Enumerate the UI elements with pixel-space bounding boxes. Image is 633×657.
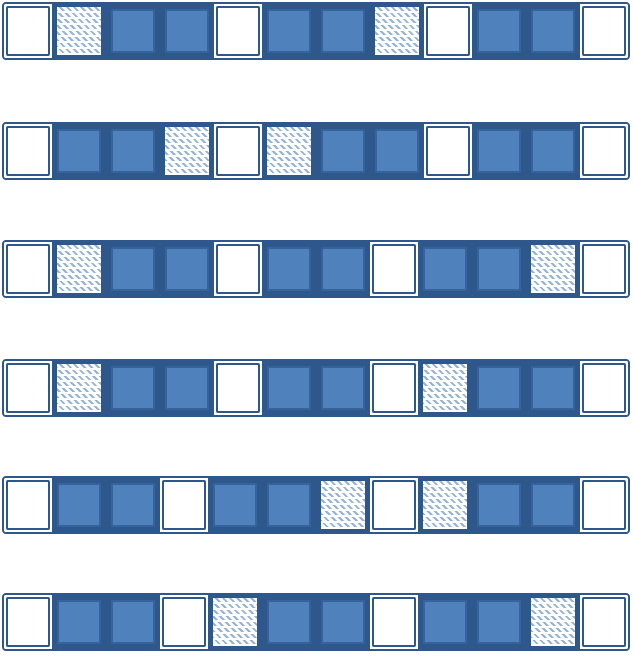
block-filled	[370, 124, 424, 178]
filled-block-face	[321, 129, 365, 173]
block-hatched	[262, 124, 316, 178]
hatched-block-face	[57, 364, 101, 412]
block-filled	[160, 242, 214, 296]
block-empty	[424, 124, 472, 178]
empty-block-face	[216, 126, 260, 176]
block-empty	[370, 478, 418, 532]
filled-block-face	[321, 9, 365, 53]
hatched-block-face	[57, 245, 101, 293]
block-empty	[580, 361, 628, 415]
filled-block-face	[321, 247, 365, 291]
block-filled	[472, 361, 526, 415]
filled-block-face	[165, 247, 209, 291]
empty-block-face	[6, 244, 50, 294]
block-filled	[316, 361, 370, 415]
filled-block-face	[165, 366, 209, 410]
block-empty	[214, 361, 262, 415]
filled-block-face	[531, 129, 575, 173]
hatched-block-face	[375, 7, 419, 55]
hatched-block-face	[423, 364, 467, 412]
filled-block-face	[477, 600, 521, 644]
block-filled	[316, 124, 370, 178]
block-hatched	[418, 478, 472, 532]
block-hatched	[418, 361, 472, 415]
block-filled	[316, 595, 370, 649]
empty-block-face	[216, 6, 260, 56]
block-empty	[370, 595, 418, 649]
filled-block-face	[477, 483, 521, 527]
empty-block-face	[6, 597, 50, 647]
block-empty	[214, 124, 262, 178]
block-hatched	[526, 242, 580, 296]
strip-row-3	[2, 240, 630, 298]
filled-block-face	[531, 483, 575, 527]
filled-block-face	[165, 9, 209, 53]
filled-block-face	[477, 129, 521, 173]
filled-block-face	[477, 247, 521, 291]
filled-block-face	[531, 9, 575, 53]
block-filled	[106, 124, 160, 178]
hatched-block-face	[267, 127, 311, 175]
block-empty	[4, 242, 52, 296]
strip-row-6	[2, 593, 630, 651]
filled-block-face	[423, 600, 467, 644]
hatched-block-face	[531, 245, 575, 293]
filled-block-face	[375, 129, 419, 173]
hatched-block-face	[321, 481, 365, 529]
block-filled	[472, 595, 526, 649]
block-hatched	[370, 4, 424, 58]
block-filled	[526, 4, 580, 58]
block-filled	[262, 242, 316, 296]
block-filled	[418, 595, 472, 649]
block-empty	[370, 242, 418, 296]
empty-block-face	[372, 363, 416, 413]
empty-block-face	[426, 6, 470, 56]
block-hatched	[160, 124, 214, 178]
empty-block-face	[216, 244, 260, 294]
block-filled	[262, 595, 316, 649]
filled-block-face	[321, 600, 365, 644]
empty-block-face	[582, 126, 626, 176]
block-filled	[316, 242, 370, 296]
block-strip-diagram	[0, 0, 633, 657]
filled-block-face	[111, 129, 155, 173]
block-hatched	[52, 242, 106, 296]
hatched-block-face	[165, 127, 209, 175]
block-filled	[472, 124, 526, 178]
hatched-block-face	[531, 598, 575, 646]
block-filled	[418, 242, 472, 296]
empty-block-face	[582, 244, 626, 294]
block-filled	[526, 124, 580, 178]
filled-block-face	[321, 366, 365, 410]
filled-block-face	[57, 129, 101, 173]
block-empty	[4, 595, 52, 649]
block-filled	[52, 595, 106, 649]
block-filled	[160, 4, 214, 58]
block-empty	[424, 4, 472, 58]
block-filled	[316, 4, 370, 58]
filled-block-face	[267, 483, 311, 527]
filled-block-face	[267, 9, 311, 53]
filled-block-face	[111, 600, 155, 644]
filled-block-face	[111, 366, 155, 410]
empty-block-face	[6, 363, 50, 413]
filled-block-face	[477, 9, 521, 53]
empty-block-face	[6, 480, 50, 530]
hatched-block-face	[423, 481, 467, 529]
block-filled	[262, 361, 316, 415]
block-empty	[580, 4, 628, 58]
hatched-block-face	[213, 598, 257, 646]
empty-block-face	[582, 480, 626, 530]
empty-block-face	[162, 480, 206, 530]
block-empty	[4, 4, 52, 58]
empty-block-face	[372, 480, 416, 530]
strip-row-2	[2, 122, 630, 180]
filled-block-face	[57, 483, 101, 527]
block-empty	[214, 242, 262, 296]
strip-row-5	[2, 476, 630, 534]
filled-block-face	[213, 483, 257, 527]
block-hatched	[526, 595, 580, 649]
filled-block-face	[423, 247, 467, 291]
block-empty	[4, 478, 52, 532]
block-filled	[526, 478, 580, 532]
block-filled	[106, 595, 160, 649]
block-filled	[106, 478, 160, 532]
block-hatched	[52, 4, 106, 58]
block-filled	[472, 4, 526, 58]
block-empty	[580, 242, 628, 296]
block-empty	[580, 124, 628, 178]
filled-block-face	[111, 483, 155, 527]
block-filled	[208, 478, 262, 532]
block-empty	[214, 4, 262, 58]
empty-block-face	[162, 597, 206, 647]
filled-block-face	[477, 366, 521, 410]
block-filled	[106, 4, 160, 58]
hatched-block-face	[57, 7, 101, 55]
block-filled	[106, 361, 160, 415]
block-filled	[472, 242, 526, 296]
empty-block-face	[582, 363, 626, 413]
filled-block-face	[267, 600, 311, 644]
filled-block-face	[57, 600, 101, 644]
empty-block-face	[6, 126, 50, 176]
empty-block-face	[216, 363, 260, 413]
block-filled	[472, 478, 526, 532]
empty-block-face	[372, 244, 416, 294]
block-hatched	[208, 595, 262, 649]
block-hatched	[316, 478, 370, 532]
filled-block-face	[267, 366, 311, 410]
filled-block-face	[531, 366, 575, 410]
empty-block-face	[6, 6, 50, 56]
empty-block-face	[426, 126, 470, 176]
filled-block-face	[111, 247, 155, 291]
block-filled	[52, 478, 106, 532]
strip-row-4	[2, 359, 630, 417]
block-filled	[262, 4, 316, 58]
block-filled	[526, 361, 580, 415]
filled-block-face	[111, 9, 155, 53]
block-empty	[160, 595, 208, 649]
block-filled	[160, 361, 214, 415]
block-hatched	[52, 361, 106, 415]
block-filled	[52, 124, 106, 178]
filled-block-face	[267, 247, 311, 291]
block-empty	[580, 595, 628, 649]
empty-block-face	[372, 597, 416, 647]
block-filled	[106, 242, 160, 296]
block-empty	[580, 478, 628, 532]
block-empty	[4, 361, 52, 415]
block-filled	[262, 478, 316, 532]
strip-row-1	[2, 2, 630, 60]
empty-block-face	[582, 597, 626, 647]
empty-block-face	[582, 6, 626, 56]
block-empty	[370, 361, 418, 415]
block-empty	[160, 478, 208, 532]
block-empty	[4, 124, 52, 178]
